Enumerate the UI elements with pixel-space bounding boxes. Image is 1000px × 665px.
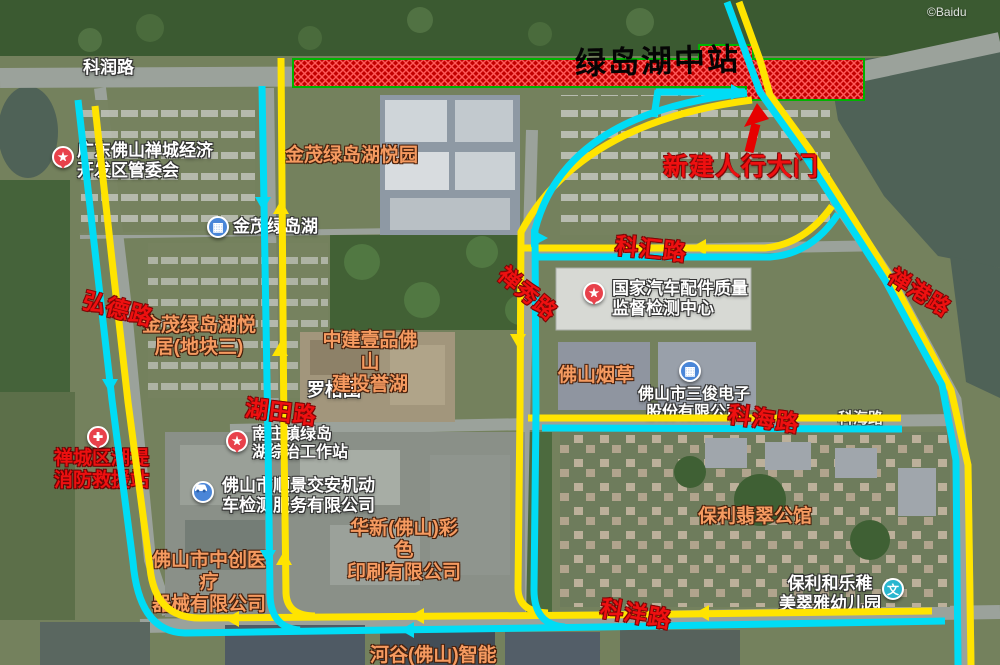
watermark: ©Baidu: [927, 6, 967, 20]
road-label-kehai: 科海路: [727, 401, 802, 437]
station-zone-label: 绿岛湖中站: [575, 42, 741, 82]
annotation-layer: 绿岛湖中站 新建人行大门 弘德路 湖田路 科汇路 禅秀路 禅港路 科海路 科洋路…: [0, 0, 1000, 665]
road-label-kehui: 科汇路: [614, 232, 688, 266]
map-canvas[interactable]: 科润路 科海路 ★ 广东佛山禅城经济 开发区管委会 ▦ 金茂绿岛湖 罗格围 ★ …: [0, 0, 1000, 665]
road-label-chanxiu: 禅秀路: [493, 262, 562, 326]
road-label-hutian: 湖田路: [244, 395, 319, 430]
road-label-changang: 禅港路: [884, 264, 956, 322]
road-label-keyang: 科洋路: [598, 595, 673, 634]
road-label-hongde: 弘德路: [80, 287, 156, 331]
gate-annotation-label: 新建人行大门: [663, 153, 819, 182]
